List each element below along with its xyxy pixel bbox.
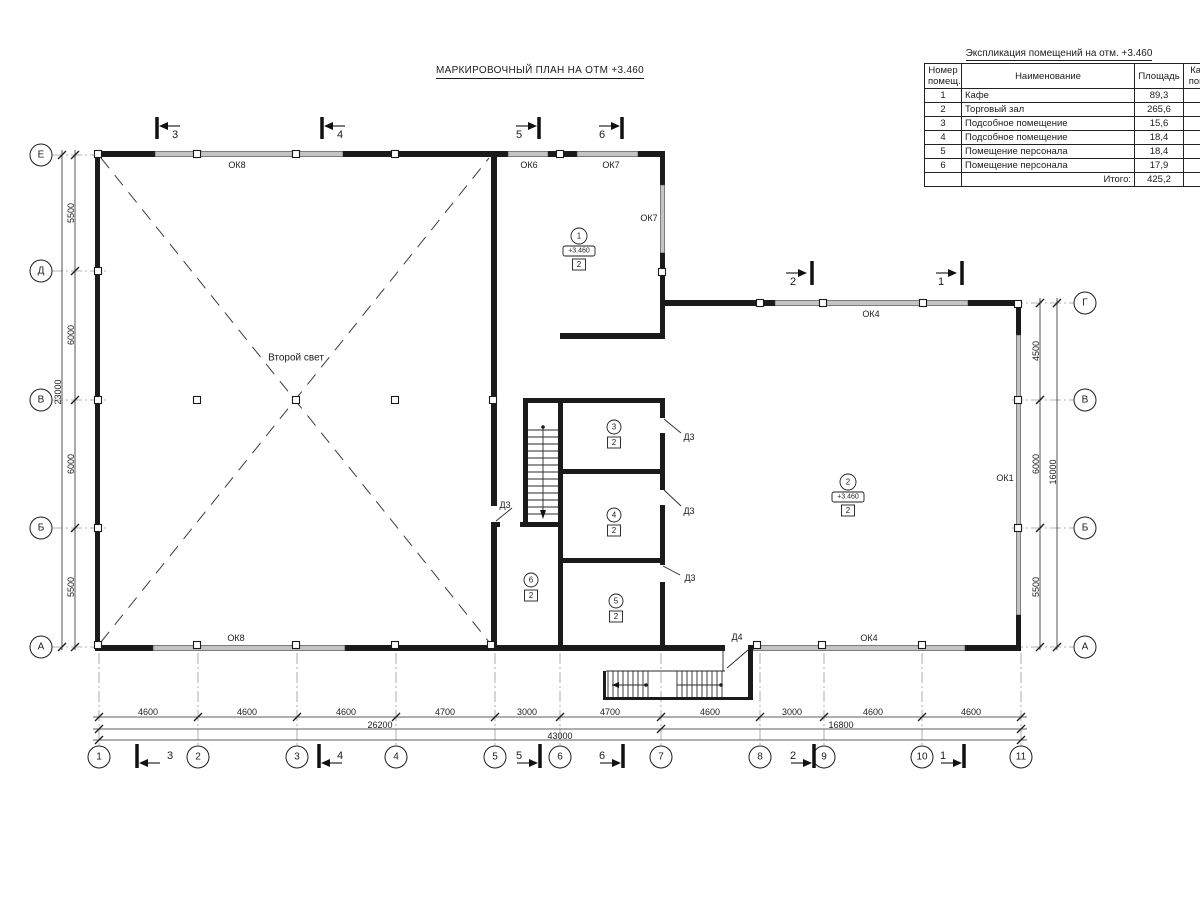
axis-A-r: А bbox=[1082, 642, 1089, 653]
section-3-bottom: 3 bbox=[167, 750, 173, 762]
door-labels: Д3 Д3 Д3 Д3 Д4 bbox=[499, 432, 742, 642]
axis-11: 11 bbox=[1016, 752, 1027, 763]
section-5-top: 5 bbox=[516, 129, 522, 141]
axis-7: 7 bbox=[658, 752, 664, 763]
window-label-ok7-side: ОК7 bbox=[640, 213, 657, 223]
axis-E: Е bbox=[38, 150, 45, 161]
dim-4-5: 4700 bbox=[435, 707, 455, 717]
dim-v-b: 6000 bbox=[66, 454, 76, 474]
dim-b-a: 5500 bbox=[66, 577, 76, 597]
dim-right-total: 16000 bbox=[1048, 459, 1058, 484]
axis-G-r: Г bbox=[1082, 298, 1088, 309]
dim-9-10: 4600 bbox=[863, 707, 883, 717]
dim-total: 43000 bbox=[547, 731, 572, 741]
axis-A: А bbox=[38, 642, 45, 653]
dim-10-11: 4600 bbox=[961, 707, 981, 717]
drawing-sheet: МАРКИРОВОЧНЫЙ ПЛАН НА ОТМ +3.460 Эксплик… bbox=[0, 0, 1200, 900]
axis-5: 5 bbox=[492, 752, 498, 763]
section-2-right: 2 bbox=[790, 276, 796, 288]
dim-subtotal-left: 26200 bbox=[367, 720, 392, 730]
room-elevation: +3.460 bbox=[837, 494, 859, 501]
dimension-text-bottom: 4600 4600 4600 4700 3000 4700 4600 3000 … bbox=[138, 707, 981, 741]
room-category: 2 bbox=[577, 260, 582, 269]
axis-8: 8 bbox=[757, 752, 763, 763]
door-label-d3-room3: Д3 bbox=[683, 432, 694, 442]
section-marks-right: 2 1 bbox=[786, 261, 962, 288]
window-label-ok8-bottom: ОК8 bbox=[227, 633, 244, 643]
axis-V-r: В bbox=[1082, 395, 1089, 406]
room-number: 6 bbox=[529, 576, 534, 585]
dim-b-a-r: 5500 bbox=[1031, 577, 1041, 597]
axis-3: 3 bbox=[294, 752, 300, 763]
window-label-ok1: ОК1 bbox=[996, 473, 1013, 483]
section-5-bottom: 5 bbox=[516, 750, 522, 762]
axis-10: 10 bbox=[916, 752, 928, 763]
room-category: 2 bbox=[614, 612, 619, 621]
room-marker-2: 2 +3.460 2 bbox=[832, 474, 864, 516]
dim-1-2: 4600 bbox=[138, 707, 158, 717]
section-marks-top: 3 4 5 6 bbox=[157, 117, 622, 141]
dim-g-v: 4500 bbox=[1031, 341, 1041, 361]
room-number: 2 bbox=[846, 478, 851, 487]
window-label-ok4-bottom: ОК4 bbox=[860, 633, 877, 643]
door-leaders bbox=[496, 419, 748, 668]
dim-e-d: 5500 bbox=[66, 203, 76, 223]
section-1-bottom: 1 bbox=[940, 750, 946, 762]
room-elevation: +3.460 bbox=[568, 248, 590, 255]
window-label-ok4-top: ОК4 bbox=[862, 309, 879, 319]
window-label-ok7-top: ОК7 bbox=[602, 160, 619, 170]
section-2-bottom: 2 bbox=[790, 750, 796, 762]
door-label-d3-room4: Д3 bbox=[683, 506, 694, 516]
interior-walls bbox=[491, 157, 753, 700]
dim-3-4: 4600 bbox=[336, 707, 356, 717]
axis-bubbles-left: Е Д В Б А bbox=[30, 144, 52, 658]
door-label-d3-left: Д3 bbox=[499, 500, 510, 510]
external-stair bbox=[603, 651, 753, 700]
room-number: 3 bbox=[612, 423, 617, 432]
dim-5-6: 3000 bbox=[517, 707, 537, 717]
axis-bubbles-bottom: 1 2 3 4 5 6 7 8 9 10 11 bbox=[88, 746, 1032, 768]
window-label-ok8-top: ОК8 bbox=[228, 160, 245, 170]
second-light-label: Второй свет bbox=[268, 353, 324, 364]
section-6-bottom: 6 bbox=[599, 750, 605, 762]
dimension-text-right: 4500 6000 5500 16000 bbox=[1031, 341, 1058, 597]
axis-V: В bbox=[38, 395, 45, 406]
floor-plan-svg: 4600 4600 4600 4700 3000 4700 4600 3000 … bbox=[0, 0, 1200, 900]
door-label-d3-room5: Д3 bbox=[684, 573, 695, 583]
dim-2-3: 4600 bbox=[237, 707, 257, 717]
axis-9: 9 bbox=[821, 752, 827, 763]
room-number: 1 bbox=[577, 232, 582, 241]
room-category: 2 bbox=[529, 591, 534, 600]
axis-4: 4 bbox=[393, 752, 399, 763]
internal-stair bbox=[528, 425, 558, 519]
axis-1: 1 bbox=[96, 752, 102, 763]
room-marker-4: 4 2 bbox=[607, 508, 621, 536]
window-label-ok6: ОК6 bbox=[520, 160, 537, 170]
dim-7-8: 4600 bbox=[700, 707, 720, 717]
room-number: 4 bbox=[612, 511, 617, 520]
axis-bubbles-right: Г В Б А bbox=[1074, 292, 1096, 658]
dim-8-9: 3000 bbox=[782, 707, 802, 717]
axis-2: 2 bbox=[195, 752, 201, 763]
room-number: 5 bbox=[614, 597, 619, 606]
section-4-top: 4 bbox=[337, 129, 343, 141]
room-category: 2 bbox=[612, 438, 617, 447]
dim-v-b-r: 6000 bbox=[1031, 454, 1041, 474]
room-category: 2 bbox=[846, 506, 851, 515]
axis-B-r: Б bbox=[1082, 523, 1089, 534]
dim-left-total: 23000 bbox=[53, 379, 63, 404]
door-label-d4: Д4 bbox=[731, 632, 742, 642]
room-marker-3: 3 2 bbox=[607, 420, 621, 448]
dim-subtotal-right: 16800 bbox=[828, 720, 853, 730]
section-4-bottom: 4 bbox=[337, 750, 343, 762]
room-marker-6: 6 2 bbox=[524, 573, 538, 601]
section-3-top: 3 bbox=[172, 129, 178, 141]
section-1-right: 1 bbox=[938, 276, 944, 288]
axis-B: Б bbox=[38, 523, 45, 534]
room-marker-1: 1 +3.460 2 bbox=[563, 228, 595, 270]
section-6-top: 6 bbox=[599, 129, 605, 141]
room-category: 2 bbox=[612, 526, 617, 535]
dim-6-7: 4700 bbox=[600, 707, 620, 717]
room-marker-5: 5 2 bbox=[609, 594, 623, 622]
dim-d-v: 6000 bbox=[66, 325, 76, 345]
axis-D: Д bbox=[38, 266, 45, 277]
axis-6: 6 bbox=[557, 752, 563, 763]
